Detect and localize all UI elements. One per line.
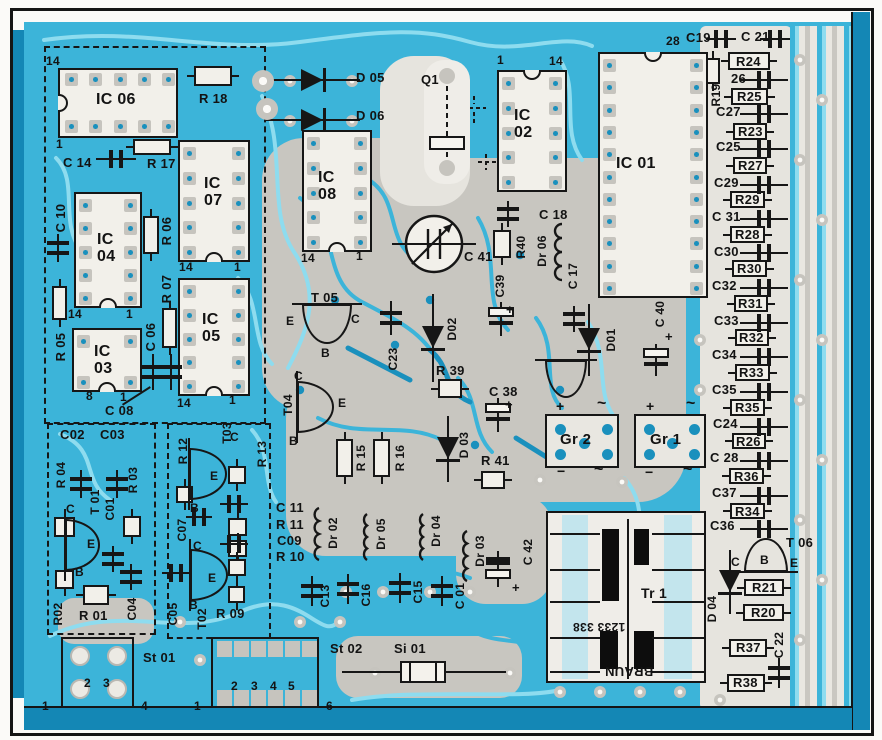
- lead: [460, 388, 469, 390]
- lead: [782, 612, 791, 614]
- lead-dashed: [446, 152, 448, 158]
- label-dr05-143: Dr 05: [375, 518, 387, 550]
- cap-plate: [380, 311, 402, 315]
- cap-plate: [757, 176, 761, 194]
- lead: [64, 587, 66, 596]
- label-c-118: C: [66, 503, 75, 515]
- label-r17-5: R 17: [147, 157, 176, 171]
- ic-pad: [502, 77, 515, 90]
- r07: [162, 308, 177, 348]
- lead: [64, 509, 66, 581]
- lead: [765, 131, 774, 133]
- label-tr1-165: Tr 1: [641, 586, 667, 601]
- lead: [740, 322, 788, 324]
- ic08: [302, 130, 372, 252]
- mount-hole-2: [256, 98, 278, 120]
- ic-pad: [183, 147, 196, 160]
- c14-cap: [96, 148, 136, 170]
- r41: [481, 471, 505, 489]
- ic-pad: [354, 211, 367, 224]
- connector-pad: [234, 641, 249, 657]
- c28-cap: [740, 452, 788, 469]
- label-st02-163: St 02: [330, 642, 363, 656]
- label-ic07-6: IC 07: [204, 176, 222, 209]
- ic-pad: [307, 137, 320, 150]
- ic-pad: [690, 104, 703, 117]
- label-r26-97: R26: [736, 435, 761, 449]
- label-r36-99: R36: [734, 470, 759, 484]
- cap-plate-outline: [643, 348, 669, 358]
- label-c34-92: C34: [712, 348, 737, 362]
- connector-pad: [217, 641, 232, 657]
- lead: [723, 199, 732, 201]
- label-c16-147: C16: [360, 584, 372, 607]
- ic-pad: [89, 73, 102, 86]
- label--45: +: [506, 303, 514, 317]
- t05-transistor: [302, 304, 352, 344]
- ic-pad: [603, 148, 616, 161]
- cap-plate: [767, 279, 771, 297]
- ic-pad: [502, 151, 515, 164]
- label-c17-37: C 17: [567, 263, 579, 290]
- transistor-body: [189, 448, 227, 500]
- winding-block: [602, 529, 619, 601]
- lead: [722, 475, 731, 477]
- label-r09-137: R 09: [216, 607, 245, 621]
- label-3-159: 3: [251, 680, 258, 692]
- cap-plate: [757, 452, 761, 470]
- label-dr06-36: Dr 06: [536, 235, 548, 267]
- cap-plate: [757, 418, 761, 436]
- lead: [347, 574, 349, 604]
- c10-cap: [46, 234, 70, 262]
- label-r28-85: R28: [735, 228, 760, 242]
- label-r31-89: R31: [738, 297, 763, 311]
- label-t05-48: T 05: [311, 291, 338, 305]
- label-r13-130: R 13: [256, 441, 268, 468]
- label-st01-152: St 01: [143, 651, 176, 665]
- ic-notch: [328, 242, 346, 252]
- cap-plate: [389, 581, 411, 585]
- label-r38-112: R38: [733, 676, 758, 690]
- lead: [720, 682, 729, 684]
- ic-pad: [183, 246, 196, 259]
- ic-pad: [183, 285, 196, 298]
- fuse-body: [400, 661, 446, 683]
- ic-pad: [183, 333, 196, 346]
- si01-fuse: [342, 659, 506, 685]
- cap-plate: [106, 487, 128, 491]
- label-4-156: 4: [141, 700, 148, 712]
- label-c25-80: C25: [716, 140, 741, 154]
- ic-pad: [502, 176, 515, 189]
- ic-pad: [603, 81, 616, 94]
- ic-pad: [690, 193, 703, 206]
- lead: [652, 569, 704, 571]
- label-t04-52: T04: [282, 394, 294, 416]
- cap-plate: [489, 321, 513, 325]
- lead: [740, 184, 788, 186]
- label-14-10: 14: [68, 308, 82, 320]
- st02-connector: [211, 637, 319, 708]
- lead: [765, 268, 774, 270]
- c31-cap: [740, 210, 788, 227]
- label-r30-87: R30: [737, 262, 762, 276]
- label-c14-4: C 14: [63, 156, 92, 170]
- lead: [381, 475, 383, 484]
- ic-pad: [307, 236, 320, 249]
- diode-bar: [436, 459, 460, 462]
- label-c27-78: C27: [716, 105, 741, 119]
- cap-plate: [109, 150, 113, 168]
- label-c30-86: C30: [714, 245, 739, 259]
- ic-pad: [690, 237, 703, 250]
- diode-bar: [323, 68, 326, 92]
- lead: [652, 601, 704, 603]
- r06: [143, 216, 159, 254]
- r05: [52, 286, 67, 320]
- label-5-161: 5: [288, 680, 295, 692]
- label-c09-140: C09: [277, 534, 302, 548]
- lead: [80, 470, 82, 498]
- ic-pad: [79, 222, 92, 235]
- c05-cap: [162, 564, 190, 582]
- ic-notch: [98, 382, 116, 392]
- label--67: ~: [686, 396, 696, 413]
- lead: [722, 647, 731, 649]
- label--151: +: [512, 581, 520, 595]
- lead: [550, 601, 600, 603]
- core-line: [627, 519, 629, 679]
- lead: [59, 318, 61, 327]
- r16: [373, 439, 390, 477]
- ic-pad: [232, 172, 245, 185]
- cap-plate: [337, 582, 359, 586]
- lead: [768, 372, 777, 374]
- label-r23-79: R23: [738, 125, 763, 139]
- cap-plate: [724, 30, 728, 48]
- ic-notch: [523, 70, 541, 80]
- label-c-127: C: [230, 431, 239, 443]
- label-c38-43: C 38: [489, 385, 518, 399]
- label-r03-116: R 03: [127, 467, 139, 494]
- label-r35-95: R35: [735, 401, 760, 415]
- lead: [152, 354, 154, 390]
- c24-cap: [740, 418, 788, 435]
- cap-plate: [767, 210, 771, 228]
- ic-pad: [354, 187, 367, 200]
- label-c18-34: C 18: [539, 208, 568, 222]
- label-r07-13: R 07: [160, 275, 174, 304]
- cap-plate: [119, 150, 123, 168]
- label-c03-114: C03: [100, 428, 125, 442]
- cap-plate: [757, 279, 761, 297]
- lead: [740, 218, 788, 220]
- lead: [740, 356, 788, 358]
- ic-pad: [549, 102, 562, 115]
- lead: [740, 426, 788, 428]
- ic-notch: [644, 52, 662, 62]
- label-gr2-60: Gr 2: [560, 432, 591, 448]
- lead: [724, 96, 733, 98]
- c37-cap: [740, 487, 788, 504]
- lead: [441, 576, 443, 606]
- cap-plate: [202, 508, 206, 526]
- lead: [778, 658, 780, 688]
- label-r15-56: R 15: [355, 445, 367, 472]
- ic-pad: [124, 335, 137, 348]
- cap-plate: [757, 244, 761, 262]
- ghost-stripe: [562, 515, 588, 679]
- c29-cap: [740, 176, 788, 193]
- cap-plate: [497, 207, 519, 211]
- ic-pad: [79, 246, 92, 259]
- ic-pad: [603, 59, 616, 72]
- solder-dot: [555, 449, 566, 460]
- cap-plate: [237, 495, 241, 513]
- ic-pad: [89, 120, 102, 133]
- label-t02-135: T02: [196, 608, 208, 630]
- ic-pad: [690, 148, 703, 161]
- label-2-153: 2: [84, 677, 91, 689]
- lead: [187, 75, 196, 77]
- ic-pad: [549, 77, 562, 90]
- fuse-cap-line: [435, 661, 437, 683]
- label-c32-88: C32: [712, 279, 737, 293]
- lead: [767, 337, 776, 339]
- lead: [184, 479, 186, 488]
- label-r25-77: R25: [737, 90, 762, 104]
- lead: [764, 440, 773, 442]
- cap-plate: [778, 30, 782, 48]
- label-c19-72: C19: [686, 31, 711, 45]
- label-si01-164: Si 01: [394, 642, 426, 656]
- lead: [726, 165, 735, 167]
- ic-pad: [307, 211, 320, 224]
- label-e-49: E: [286, 315, 294, 327]
- cap-plate: [757, 487, 761, 505]
- label-r40-35: R40: [515, 236, 527, 259]
- ic-pad: [354, 236, 367, 249]
- dr05-coil: [354, 512, 372, 562]
- lead: [236, 579, 238, 588]
- lead: [723, 407, 732, 409]
- cap-plate: [337, 592, 359, 596]
- lead: [740, 252, 788, 254]
- lead: [535, 359, 597, 361]
- c41-trimmer: [404, 214, 464, 274]
- label-14-21: 14: [177, 397, 191, 409]
- ic-pad: [232, 246, 245, 259]
- lead: [381, 432, 383, 441]
- dr02-coil: [306, 506, 324, 562]
- label-14-14: 14: [179, 261, 193, 273]
- ic-pad: [690, 215, 703, 228]
- label-r20-109: R20: [751, 606, 776, 620]
- transistor-body: [302, 304, 352, 344]
- ic-pad: [549, 176, 562, 189]
- ic-pad: [79, 292, 92, 305]
- cap-plate: [767, 487, 771, 505]
- tr1-transformer: [546, 511, 706, 683]
- label-r39-42: R 39: [436, 364, 465, 378]
- label-c08-23: C 08: [105, 404, 134, 418]
- solder-dot: [689, 449, 700, 460]
- label-1-20: 1: [120, 391, 127, 403]
- label-c07-131: C07: [176, 519, 188, 542]
- label-c35-94: C35: [712, 383, 737, 397]
- ic-pad: [603, 126, 616, 139]
- lead: [236, 552, 238, 561]
- c23-cap: [377, 301, 405, 335]
- c35-cap: [740, 383, 788, 400]
- label-dr03-145: Dr 03: [474, 535, 486, 567]
- c34-cap: [740, 348, 788, 365]
- label-d03-58: D 03: [458, 432, 470, 459]
- label--69: ~: [683, 462, 693, 479]
- lead: [763, 199, 772, 201]
- cap-plate: [757, 383, 761, 401]
- lead-dashed: [446, 86, 448, 136]
- cap-plate: [47, 241, 69, 245]
- d06-diode: [266, 104, 360, 136]
- cap-plate: [237, 535, 241, 553]
- lead: [725, 440, 734, 442]
- ic-pad: [124, 246, 137, 259]
- transistor-body: [545, 360, 587, 398]
- label-r18-2: R 18: [199, 92, 228, 106]
- ic-pad: [124, 269, 137, 282]
- c26-cap: [740, 71, 788, 88]
- label-1-3: 1: [56, 138, 63, 150]
- lead: [740, 528, 788, 530]
- c36-cap: [740, 520, 788, 537]
- label-dr02-142: Dr 02: [327, 517, 339, 549]
- ghost-stripe: [664, 515, 692, 679]
- connector-pad: [107, 646, 127, 666]
- label-e-128: E: [210, 470, 218, 482]
- label-c37-100: C37: [712, 486, 737, 500]
- lead: [311, 576, 313, 606]
- lead: [550, 569, 600, 571]
- ic-pad: [603, 260, 616, 273]
- lead: [763, 510, 772, 512]
- label-1-28: 1: [356, 250, 363, 262]
- ic-notch: [99, 298, 117, 308]
- c22-cap: [764, 658, 794, 688]
- dr03-coil: [454, 529, 472, 583]
- lead: [130, 564, 132, 590]
- ic-pad: [690, 260, 703, 273]
- fuse-cap-line: [409, 661, 411, 683]
- ic-pad: [162, 73, 175, 86]
- label-1-11: 1: [126, 308, 133, 320]
- label-ic03-18: IC 03: [94, 344, 112, 377]
- ic-pad: [549, 151, 562, 164]
- c08-cap: [163, 354, 178, 390]
- label-3-154: 3: [103, 677, 110, 689]
- lead: [390, 301, 392, 335]
- cap-plate: [497, 217, 519, 221]
- lead: [150, 209, 152, 218]
- cap-plate: [767, 383, 771, 401]
- lead: [740, 287, 788, 289]
- cap-plate: [767, 71, 771, 89]
- label-t06-103: T 06: [786, 536, 813, 550]
- t04-transistor: [297, 381, 334, 433]
- lead: [220, 503, 248, 505]
- ic-pad: [183, 380, 196, 393]
- ic-pad: [603, 215, 616, 228]
- connector-pad: [302, 690, 317, 706]
- cap-plate: [767, 176, 771, 194]
- lead: [507, 201, 509, 227]
- cap-plate: [160, 365, 182, 369]
- lead: [712, 51, 714, 60]
- cap-plate: [767, 348, 771, 366]
- ic-pad: [232, 380, 245, 393]
- ic-pad: [77, 376, 90, 389]
- cap-plate: [389, 591, 411, 595]
- lead: [740, 113, 788, 115]
- label-c41-33: C 41: [464, 250, 493, 264]
- lead: [762, 475, 771, 477]
- label-1-15: 1: [234, 261, 241, 273]
- label-d04-107: D 04: [706, 596, 718, 623]
- label-braun-167: BRAUN: [605, 664, 653, 678]
- lead: [501, 256, 503, 265]
- lead: [740, 460, 788, 462]
- label-b-129: B: [190, 502, 199, 514]
- lead: [765, 165, 774, 167]
- label-d02-40: D02: [446, 318, 458, 341]
- ic-pad: [603, 193, 616, 206]
- cap-plate: [757, 210, 761, 228]
- sq-b1: [228, 466, 246, 484]
- lead: [550, 671, 600, 673]
- ic-pad: [65, 73, 78, 86]
- lead: [220, 543, 248, 545]
- cap-plate: [714, 30, 718, 48]
- lead: [236, 459, 238, 468]
- solder-dot: [689, 424, 700, 435]
- ic-pad: [124, 199, 137, 212]
- solder-dot: [644, 449, 655, 460]
- cap-plate: [757, 71, 761, 89]
- ic-pad: [183, 197, 196, 210]
- st01-connector: [61, 637, 134, 708]
- dr06-coil: [549, 222, 567, 282]
- label-d05-24: D 05: [356, 71, 385, 85]
- c06-cap: [145, 354, 160, 390]
- label-r32-91: R32: [739, 331, 764, 345]
- label-ic06-1: IC 06: [96, 92, 136, 109]
- ic-pad: [183, 309, 196, 322]
- label-b-55: B: [289, 435, 298, 447]
- lead: [431, 388, 440, 390]
- cap-plate: [431, 584, 453, 588]
- crystal-body: [429, 136, 465, 150]
- label-c33-90: C33: [714, 314, 739, 328]
- c42-cap: [483, 551, 513, 587]
- c30-cap: [740, 244, 788, 261]
- lead: [740, 495, 788, 497]
- diode-triangle: [719, 570, 741, 592]
- r01: [83, 585, 109, 605]
- label-c31-84: C 31: [712, 210, 741, 224]
- ic-pad: [114, 120, 127, 133]
- lead: [162, 572, 190, 574]
